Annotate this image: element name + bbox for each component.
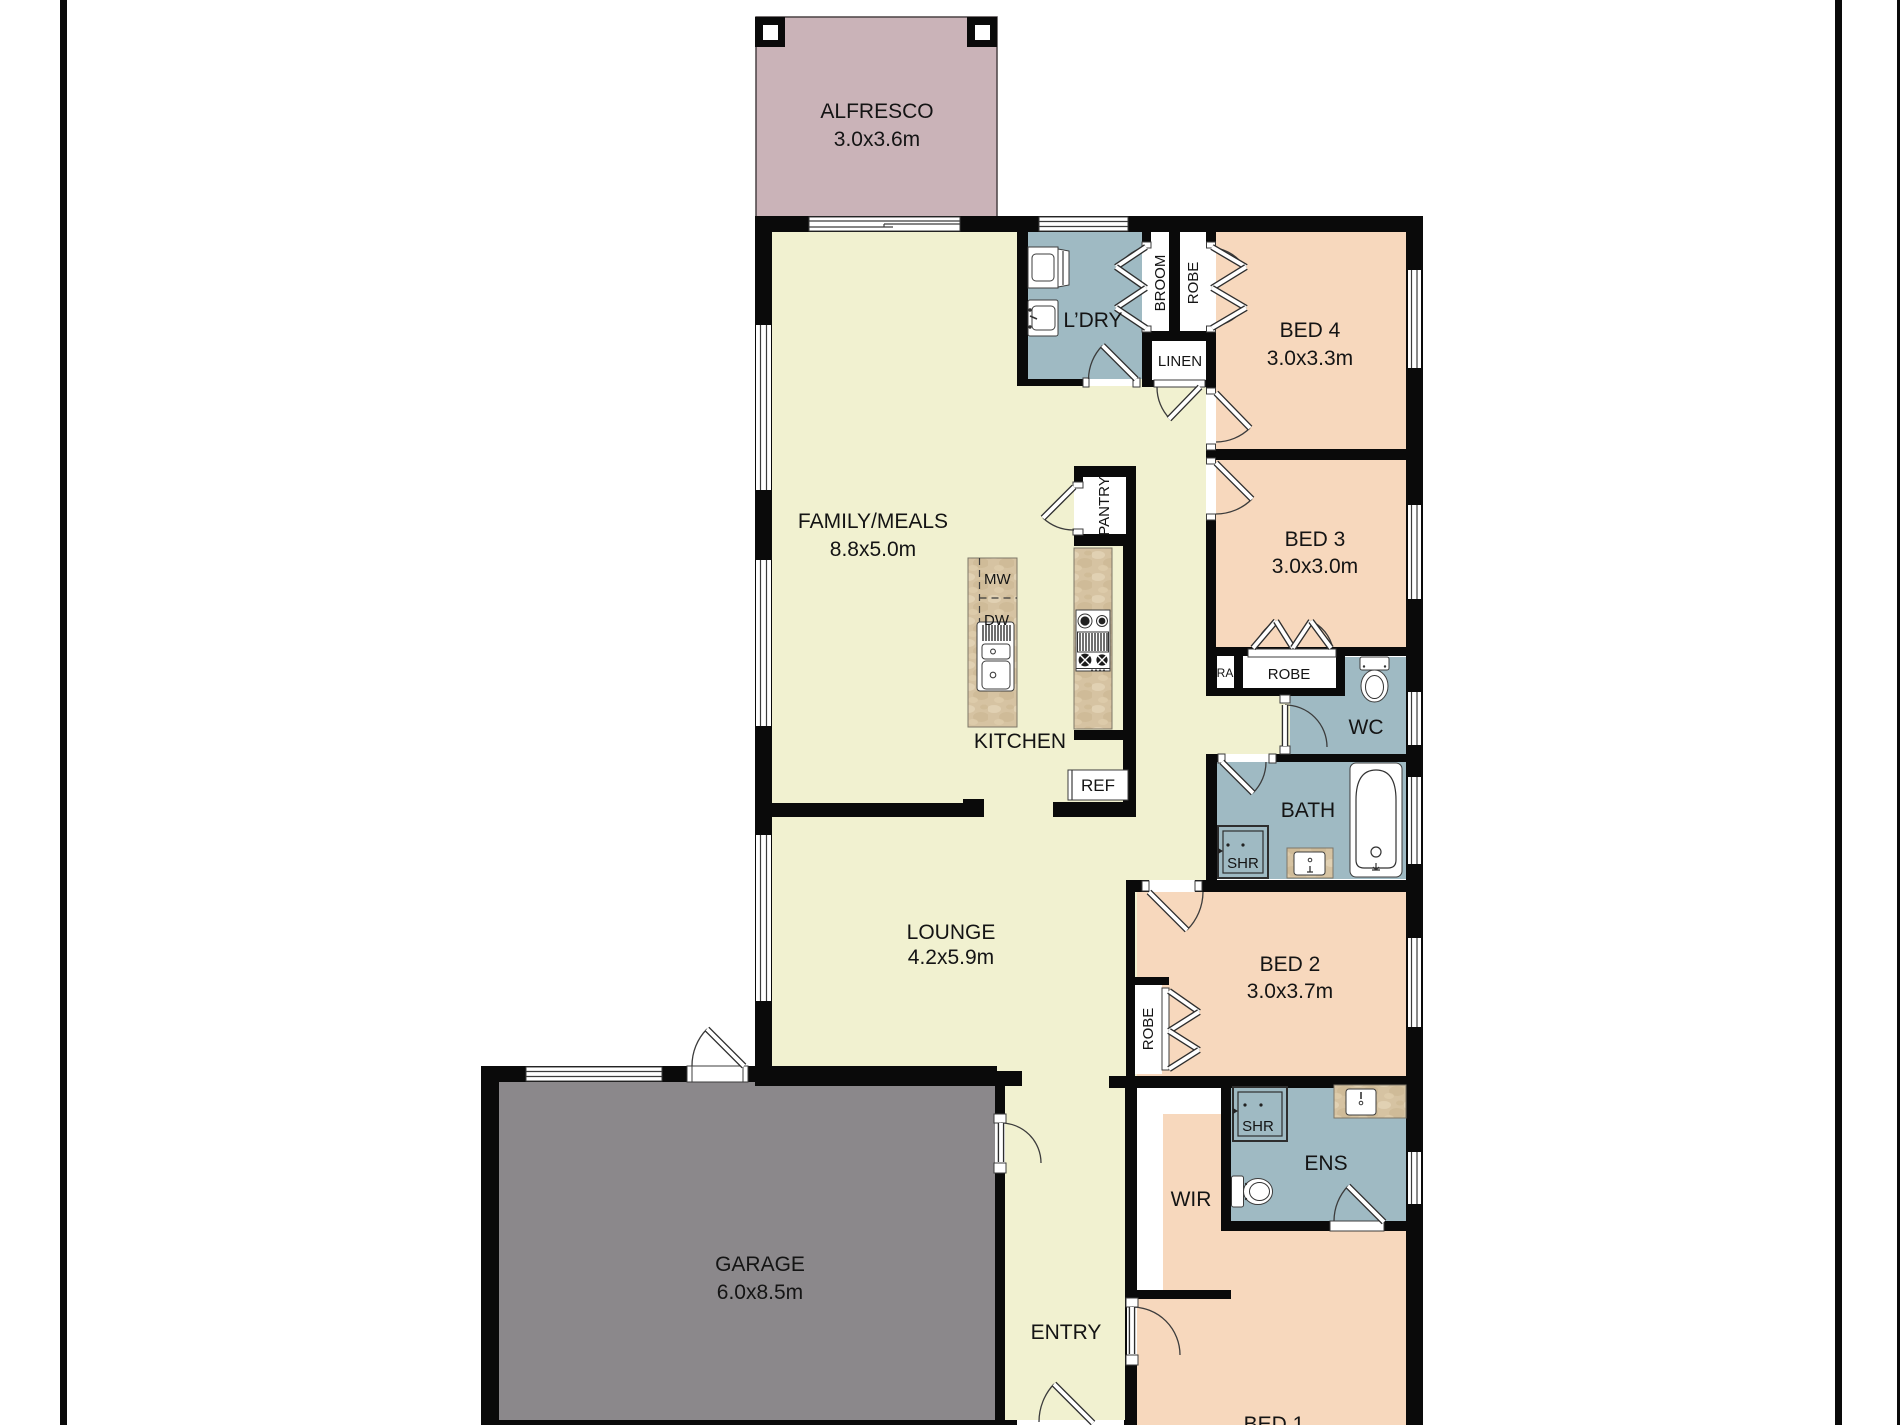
svg-text:BED 3: BED 3	[1285, 528, 1346, 551]
svg-text:3.0x3.7m: 3.0x3.7m	[1247, 980, 1333, 1003]
svg-text:SHR: SHR	[1227, 855, 1259, 872]
svg-text:ROBE: ROBE	[1140, 1008, 1157, 1051]
svg-text:LINEN: LINEN	[1158, 353, 1202, 370]
svg-text:REF: REF	[1081, 776, 1115, 795]
svg-text:PANTRY: PANTRY	[1096, 476, 1113, 535]
svg-text:ROBE: ROBE	[1268, 666, 1311, 683]
svg-text:ENTRY: ENTRY	[1031, 1321, 1102, 1344]
svg-text:L’DRY: L’DRY	[1063, 309, 1122, 332]
svg-text:WIR: WIR	[1171, 1188, 1212, 1211]
svg-text:3.0x3.3m: 3.0x3.3m	[1267, 347, 1353, 370]
svg-text:LOUNGE: LOUNGE	[907, 921, 996, 944]
svg-text:8.8x5.0m: 8.8x5.0m	[830, 538, 916, 561]
svg-text:3.0x3.0m: 3.0x3.0m	[1272, 555, 1358, 578]
svg-text:BED 1: BED 1	[1244, 1413, 1305, 1425]
svg-text:ENS: ENS	[1304, 1152, 1347, 1175]
svg-text:BED 4: BED 4	[1280, 319, 1341, 342]
svg-text:KITCHEN: KITCHEN	[974, 730, 1066, 753]
svg-text:BATH: BATH	[1281, 799, 1335, 822]
svg-text:FAMILY/MEALS: FAMILY/MEALS	[798, 510, 948, 533]
svg-text:RA: RA	[1217, 666, 1234, 680]
svg-text:3.0x3.6m: 3.0x3.6m	[834, 128, 920, 151]
svg-text:BROOM: BROOM	[1152, 255, 1169, 312]
svg-text:GARAGE: GARAGE	[715, 1253, 805, 1276]
svg-text:WC: WC	[1349, 716, 1384, 739]
svg-text:ROBE: ROBE	[1185, 262, 1202, 305]
svg-text:BED 2: BED 2	[1260, 953, 1321, 976]
svg-text:SHR: SHR	[1242, 1118, 1274, 1135]
svg-text:DW: DW	[984, 612, 1010, 629]
svg-text:ALFRESCO: ALFRESCO	[820, 100, 933, 123]
svg-text:4.2x5.9m: 4.2x5.9m	[908, 946, 994, 969]
svg-text:6.0x8.5m: 6.0x8.5m	[717, 1281, 803, 1304]
svg-text:MW: MW	[984, 571, 1011, 588]
